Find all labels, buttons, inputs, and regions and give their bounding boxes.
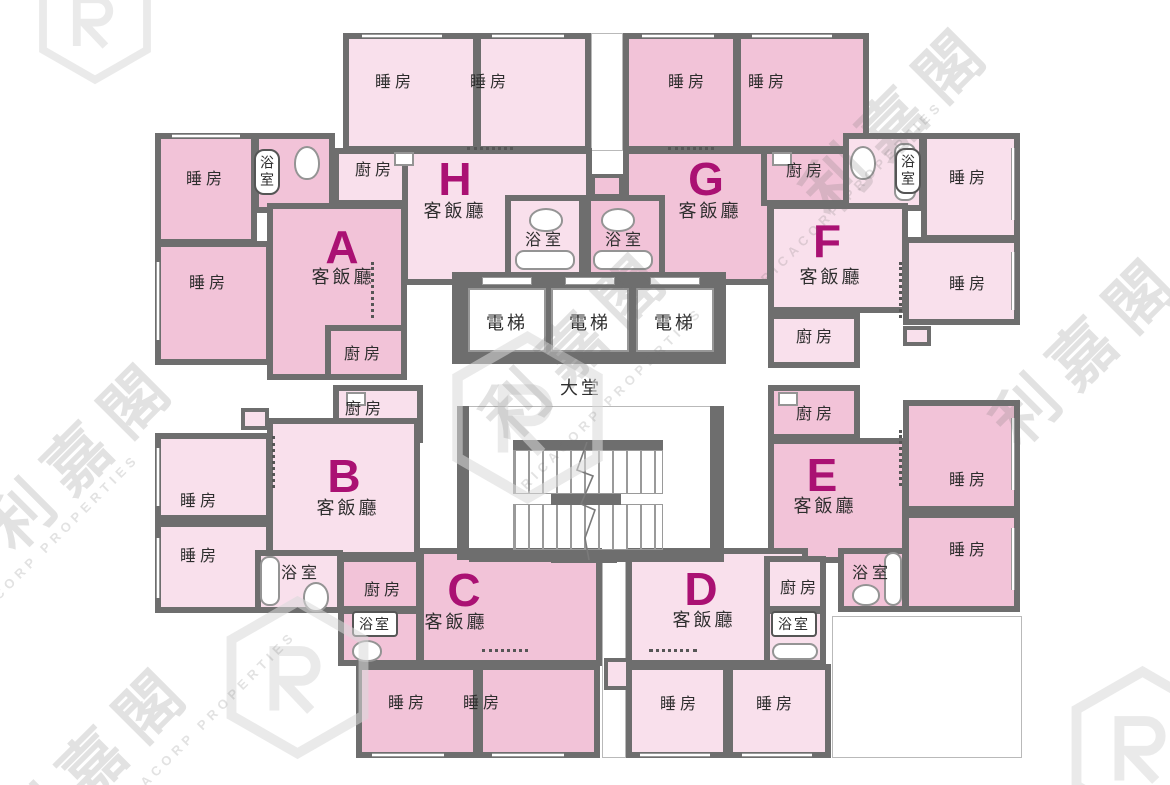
- elevator-1-label: 電梯: [486, 309, 528, 335]
- bathtub-fixture-b: [260, 556, 280, 606]
- window: [172, 134, 240, 138]
- light-well-top: [591, 33, 623, 151]
- unit-e-bathroom-label: 浴室: [852, 559, 892, 583]
- window: [1011, 418, 1015, 490]
- unit-e-kitchen-label: 廚房: [796, 400, 836, 424]
- unit-f-living-label: 客飯廳: [800, 263, 863, 289]
- unit-g-bedroom-2-label: 睡房: [748, 68, 788, 92]
- window: [640, 753, 710, 757]
- elevator-3-door: [650, 277, 700, 285]
- bathtub-fixture-d: [772, 643, 818, 660]
- unit-d-bathroom-label: 浴室: [771, 611, 817, 637]
- unit-g-kitchen-label: 廚房: [786, 157, 826, 181]
- unit-e-bedroom-2: [903, 512, 1020, 612]
- unit-b-living-label: 客飯廳: [317, 494, 380, 520]
- unit-c-kitchen-label: 廚房: [364, 576, 404, 600]
- unit-h-bedroom-1-label: 睡房: [375, 68, 415, 92]
- staircase-wall-topleft: [457, 406, 469, 448]
- window: [492, 34, 564, 38]
- unit-c-bathroom-label: 浴室: [352, 611, 398, 637]
- unit-d-bedroom-2-label: 睡房: [756, 690, 796, 714]
- staircase-wall-right: [710, 406, 724, 562]
- staircase-wall-left: [457, 446, 469, 560]
- unit-h-bedroom-2: [475, 33, 591, 152]
- window: [1011, 528, 1015, 590]
- unit-d-bedroom-1-label: 睡房: [660, 690, 700, 714]
- window: [362, 34, 442, 38]
- toilet-fixture-b: [303, 582, 329, 612]
- window: [156, 538, 160, 598]
- dashed-partition-f: [899, 262, 902, 318]
- ac-platform-b: [241, 408, 269, 430]
- unit-f-bathroom-label: 浴室: [895, 148, 921, 194]
- toilet-fixture-a: [294, 146, 320, 180]
- staircase-wall-bottom-right: [617, 550, 712, 562]
- unit-e-bedroom-1-label: 睡房: [949, 466, 989, 490]
- ac-platform-f: [903, 326, 931, 346]
- dashed-partition-h: [467, 147, 513, 150]
- open-court-bottom-right: [832, 616, 1022, 758]
- dashed-partition-g: [668, 147, 714, 150]
- unit-b-kitchen-label: 廚房: [345, 395, 385, 419]
- toilet-fixture-e: [852, 584, 880, 606]
- unit-f-kitchen-label: 廚房: [796, 323, 836, 347]
- window: [156, 448, 160, 506]
- toilet-fixture-c: [352, 640, 382, 662]
- watermark-brand-bottom-left: 利嘉閣: [0, 638, 212, 785]
- window: [742, 753, 812, 757]
- staircase-wall-bottom-left: [469, 550, 559, 562]
- window: [1011, 148, 1015, 220]
- unit-b-bedroom-2-label: 睡房: [180, 542, 220, 566]
- unit-d-living-label: 客飯廳: [673, 606, 736, 632]
- elevator-2-label: 電梯: [569, 309, 611, 335]
- elevator-3-label: 電梯: [654, 309, 696, 335]
- unit-e-bedroom-1: [903, 400, 1020, 512]
- unit-c-bedroom-1-label: 睡房: [388, 689, 428, 713]
- unit-h-bathroom-label: 浴室: [525, 226, 565, 250]
- lobby-label: 大堂: [560, 374, 602, 400]
- kitchen-sink-h: [394, 152, 414, 166]
- unit-a-bedroom-2-label: 睡房: [189, 269, 229, 293]
- unit-a-living-label: 客飯廳: [312, 263, 375, 289]
- window: [156, 262, 160, 340]
- unit-a-bedroom-1-label: 睡房: [186, 165, 226, 189]
- unit-h-living-label: 客飯廳: [424, 197, 487, 223]
- window: [1011, 252, 1015, 310]
- unit-a-bedroom-1: [155, 133, 257, 245]
- unit-a-bedroom-2: [155, 241, 272, 365]
- unit-d-kitchen-label: 廚房: [780, 574, 820, 598]
- unit-g-living-label: 客飯廳: [679, 197, 742, 223]
- window: [752, 34, 832, 38]
- unit-e-living-label: 客飯廳: [794, 492, 857, 518]
- dashed-partition-e: [899, 430, 902, 486]
- elevator-2-door: [565, 277, 615, 285]
- toilet-fixture-f: [850, 146, 876, 180]
- bathtub-fixture-h: [515, 250, 575, 270]
- unit-g-bedroom-1: [623, 33, 739, 152]
- unit-g-bedroom-1-label: 睡房: [668, 68, 708, 92]
- window: [642, 34, 714, 38]
- unit-f-bedroom-1-label: 睡房: [949, 164, 989, 188]
- unit-c-bedroom-2-label: 睡房: [463, 689, 503, 713]
- unit-h-bedroom-2-label: 睡房: [470, 68, 510, 92]
- window: [372, 753, 444, 757]
- unit-h-bedroom-1: [343, 33, 479, 152]
- unit-g-bathroom-label: 浴室: [605, 226, 645, 250]
- ricacorp-logo-watermark: [30, 0, 160, 85]
- stair-break-line: [565, 442, 605, 560]
- bathtub-fixture-g: [593, 250, 653, 270]
- elevator-1-door: [482, 277, 532, 285]
- watermark-brand-en-left: RICACORP PROPERTIES: [0, 451, 142, 639]
- unit-f-bedroom-2-label: 睡房: [949, 270, 989, 294]
- unit-f-letter: F: [813, 214, 841, 268]
- unit-a-kitchen-label: 廚房: [344, 340, 384, 364]
- unit-b-bedroom-1-label: 睡房: [180, 487, 220, 511]
- dashed-partition-b: [272, 436, 275, 488]
- ricacorp-logo-watermark: [1060, 665, 1170, 785]
- dashed-partition-d: [649, 649, 697, 652]
- watermark-brand-en-bottom-left: RICACORP PROPERTIES: [111, 628, 299, 785]
- dashed-partition-c: [482, 649, 528, 652]
- unit-e-bedroom-2-label: 睡房: [949, 536, 989, 560]
- floor-plan: A B C D E F G H 客飯廳 客飯廳 客飯廳 客飯廳 客飯廳 客飯廳 …: [0, 0, 1170, 785]
- corridor-bottom: [602, 550, 626, 758]
- unit-a-bathroom-label: 浴室: [254, 149, 280, 195]
- unit-c-living-label: 客飯廳: [425, 608, 488, 634]
- unit-b-bathroom-label: 浴室: [281, 559, 321, 583]
- window: [492, 753, 564, 757]
- unit-h-kitchen-label: 廚房: [355, 156, 395, 180]
